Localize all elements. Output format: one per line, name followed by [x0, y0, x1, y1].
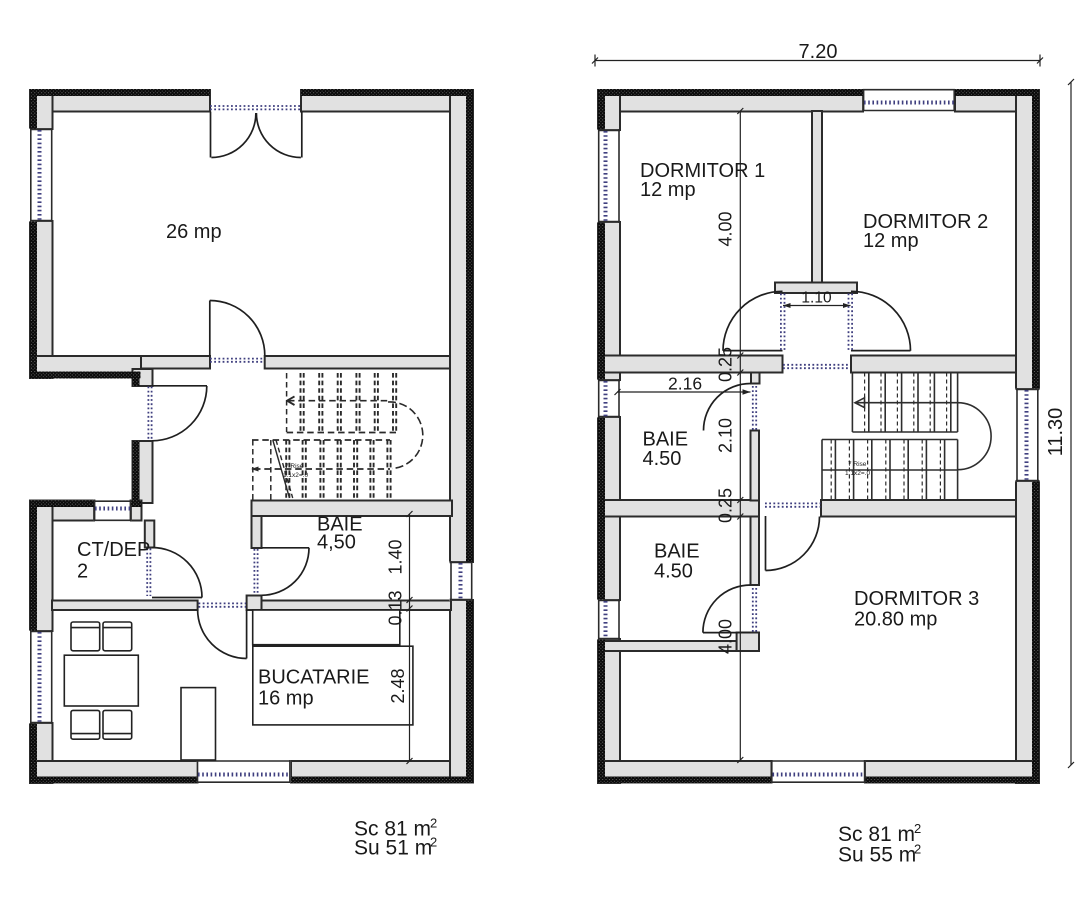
svg-text:11.30: 11.30 — [1045, 408, 1067, 457]
svg-text:1.40: 1.40 — [386, 539, 406, 574]
svg-text:16 mp: 16 mp — [258, 688, 314, 710]
svg-text:0.25: 0.25 — [716, 347, 736, 382]
svg-text:7 Rise: 7 Rise — [848, 461, 867, 468]
svg-text:0.13: 0.13 — [386, 590, 406, 625]
svg-text:2: 2 — [430, 835, 437, 850]
svg-text:20.80 mp: 20.80 mp — [854, 609, 937, 631]
svg-text:4.00: 4.00 — [716, 211, 736, 246]
svg-text:Su 55 m: Su 55 m — [838, 844, 916, 867]
svg-text:4.50: 4.50 — [654, 561, 693, 583]
svg-text:CT/DEP: CT/DEP — [77, 539, 150, 561]
svg-text:DORMITOR 3: DORMITOR 3 — [854, 588, 979, 610]
svg-text:BUCATARIE: BUCATARIE — [258, 667, 370, 689]
svg-text:0.25: 0.25 — [716, 488, 736, 523]
svg-text:26 mp: 26 mp — [166, 221, 222, 243]
svg-text:4.50: 4.50 — [643, 448, 682, 470]
svg-text:2.10: 2.10 — [716, 418, 736, 453]
svg-text:Su 51 m: Su 51 m — [354, 837, 432, 860]
svg-text:BAIE: BAIE — [654, 541, 700, 563]
svg-text:2: 2 — [914, 821, 921, 836]
svg-text:2: 2 — [430, 816, 437, 831]
svg-text:4,50: 4,50 — [317, 532, 356, 554]
svg-text:1.10: 1.10 — [801, 290, 832, 307]
svg-text:2: 2 — [77, 561, 88, 583]
svg-text:7 Rise: 7 Rise — [285, 463, 304, 470]
svg-text:12 mp: 12 mp — [863, 230, 919, 252]
svg-text:1.1x2=.0: 1.1x2=.0 — [283, 472, 309, 479]
svg-text:2.48: 2.48 — [388, 668, 408, 703]
svg-text:4.00: 4.00 — [716, 619, 736, 654]
svg-text:2: 2 — [914, 842, 921, 857]
svg-text:1.1x2=.0: 1.1x2=.0 — [845, 470, 871, 477]
svg-text:2.16: 2.16 — [668, 374, 702, 394]
svg-text:7.20: 7.20 — [799, 41, 838, 63]
svg-text:12 mp: 12 mp — [640, 179, 696, 201]
